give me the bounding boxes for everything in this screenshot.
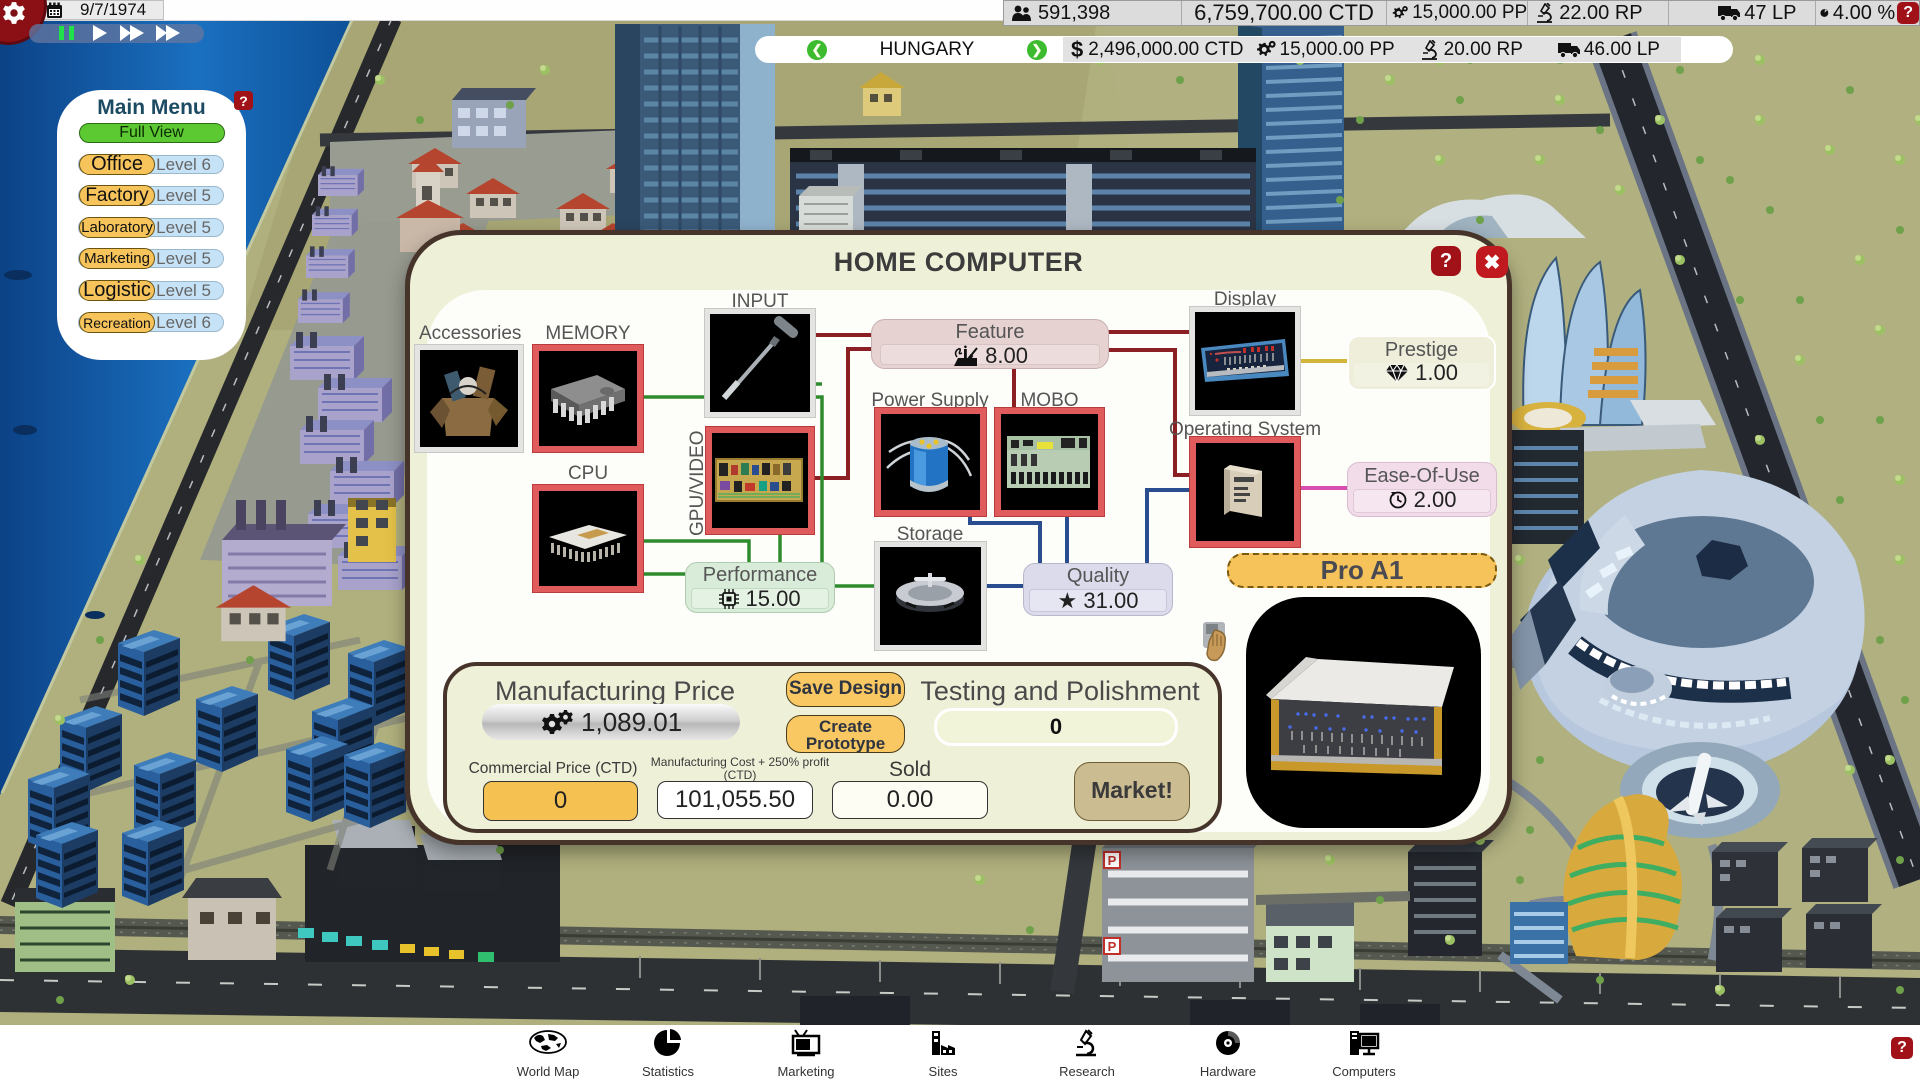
svg-text:P: P bbox=[1108, 853, 1117, 868]
svg-text:P: P bbox=[1108, 939, 1117, 954]
